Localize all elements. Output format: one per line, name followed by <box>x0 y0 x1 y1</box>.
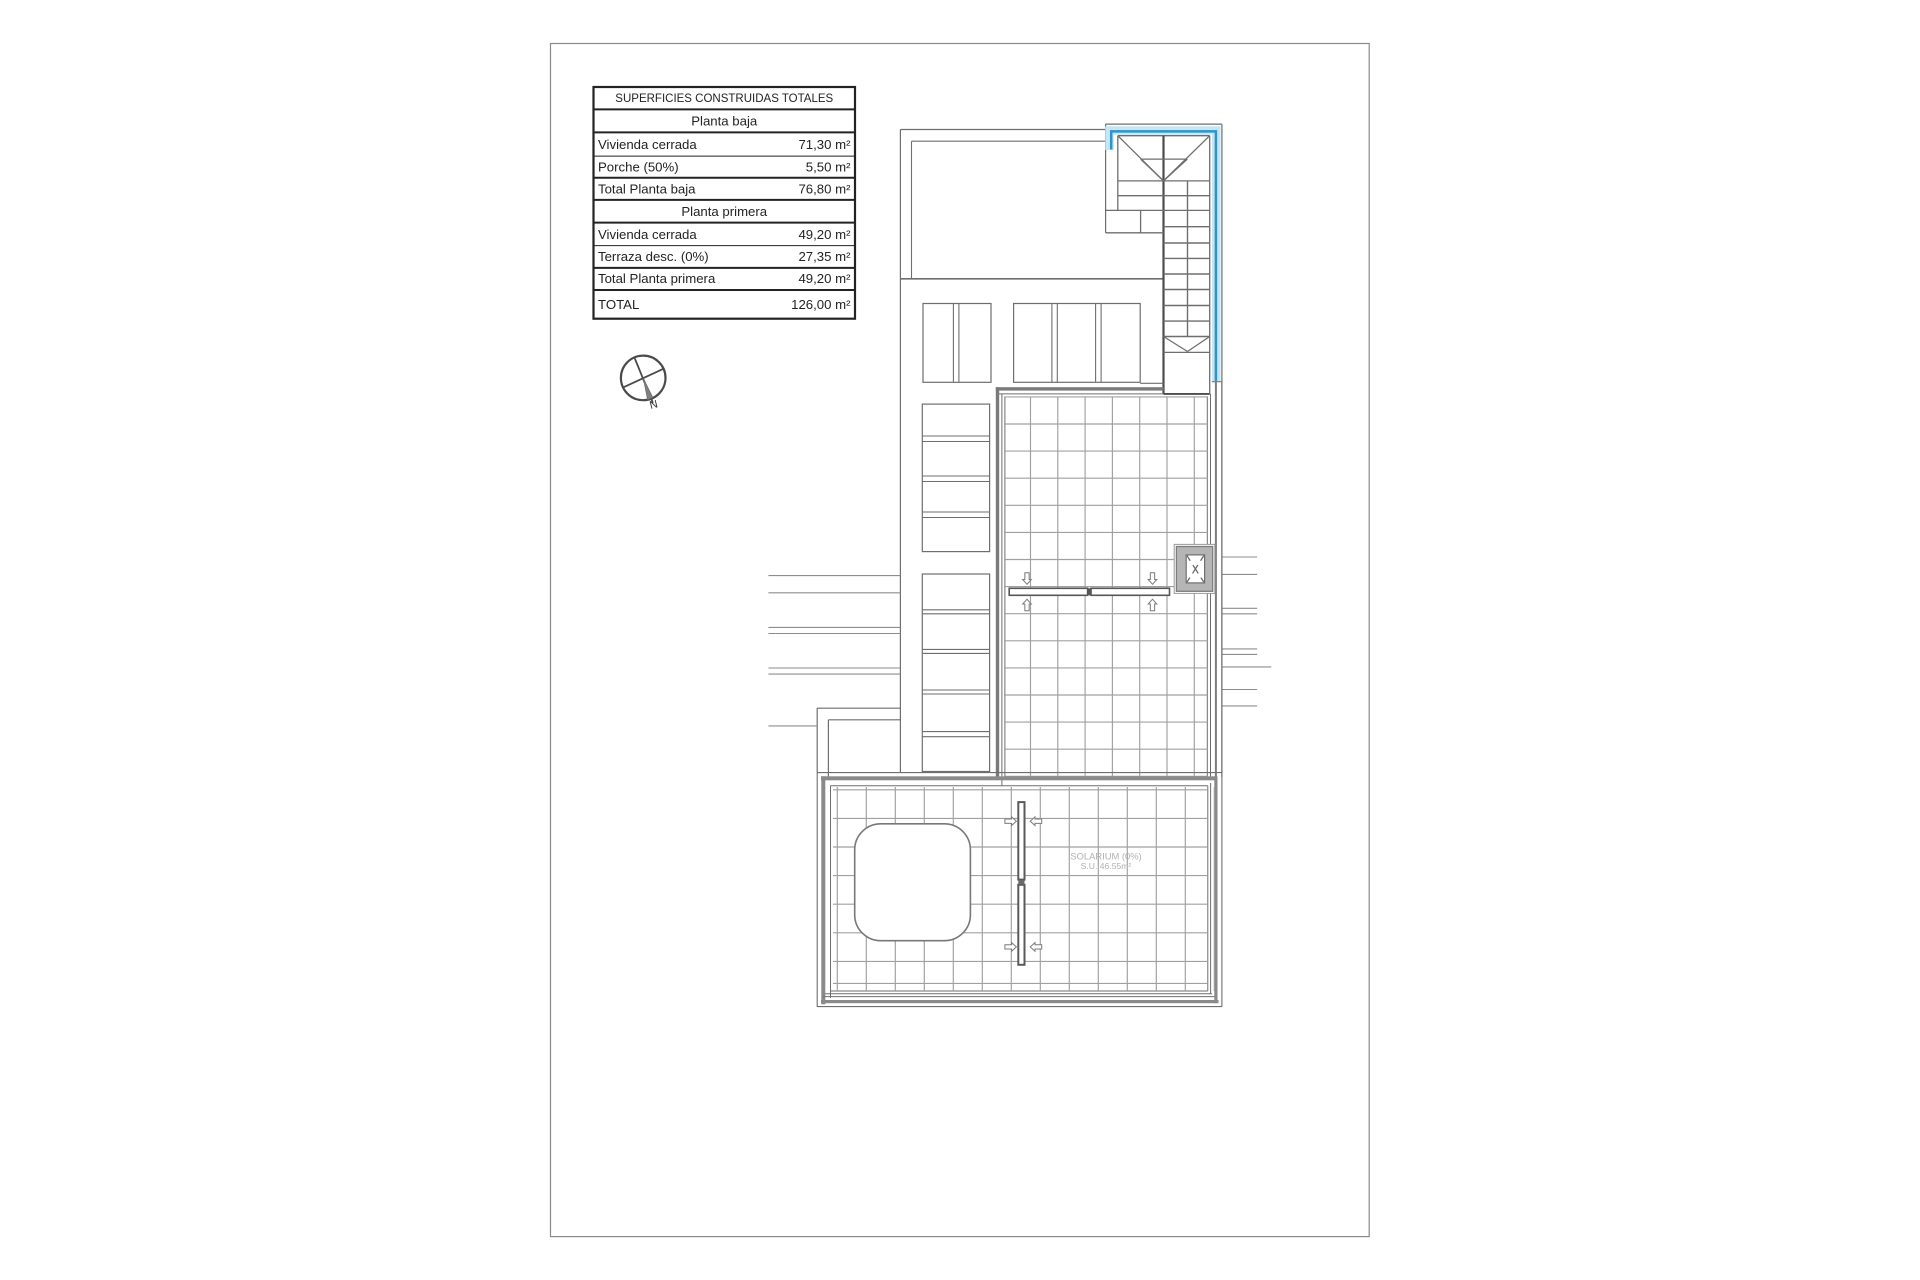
svg-text:Terraza desc. (0%): Terraza desc. (0%) <box>598 249 709 264</box>
svg-text:N: N <box>648 398 659 412</box>
svg-text:Vivienda cerrada: Vivienda cerrada <box>598 227 697 242</box>
svg-text:Vivienda cerrada: Vivienda cerrada <box>598 137 697 152</box>
svg-text:SOLARIUM (0%): SOLARIUM (0%) <box>1070 851 1141 862</box>
svg-text:5,50 m²: 5,50 m² <box>806 159 851 174</box>
svg-text:126,00 m²: 126,00 m² <box>791 297 851 312</box>
svg-text:SUPERFICIES CONSTRUIDAS TOTALE: SUPERFICIES CONSTRUIDAS TOTALES <box>615 93 833 105</box>
svg-text:Planta primera: Planta primera <box>681 204 767 219</box>
svg-text:71,30 m²: 71,30 m² <box>798 137 851 152</box>
svg-text:49,20 m²: 49,20 m² <box>798 271 851 286</box>
svg-text:27,35 m²: 27,35 m² <box>798 249 851 264</box>
svg-text:76,80 m²: 76,80 m² <box>798 182 851 197</box>
svg-text:Total Planta primera: Total Planta primera <box>598 271 716 286</box>
svg-text:Porche (50%): Porche (50%) <box>598 159 679 174</box>
svg-text:TOTAL: TOTAL <box>598 297 639 312</box>
svg-text:Total Planta baja: Total Planta baja <box>598 182 696 197</box>
svg-text:49,20 m²: 49,20 m² <box>798 227 851 242</box>
svg-text:Planta baja: Planta baja <box>691 114 758 129</box>
svg-text:S.U. 46.55m²: S.U. 46.55m² <box>1081 861 1132 871</box>
